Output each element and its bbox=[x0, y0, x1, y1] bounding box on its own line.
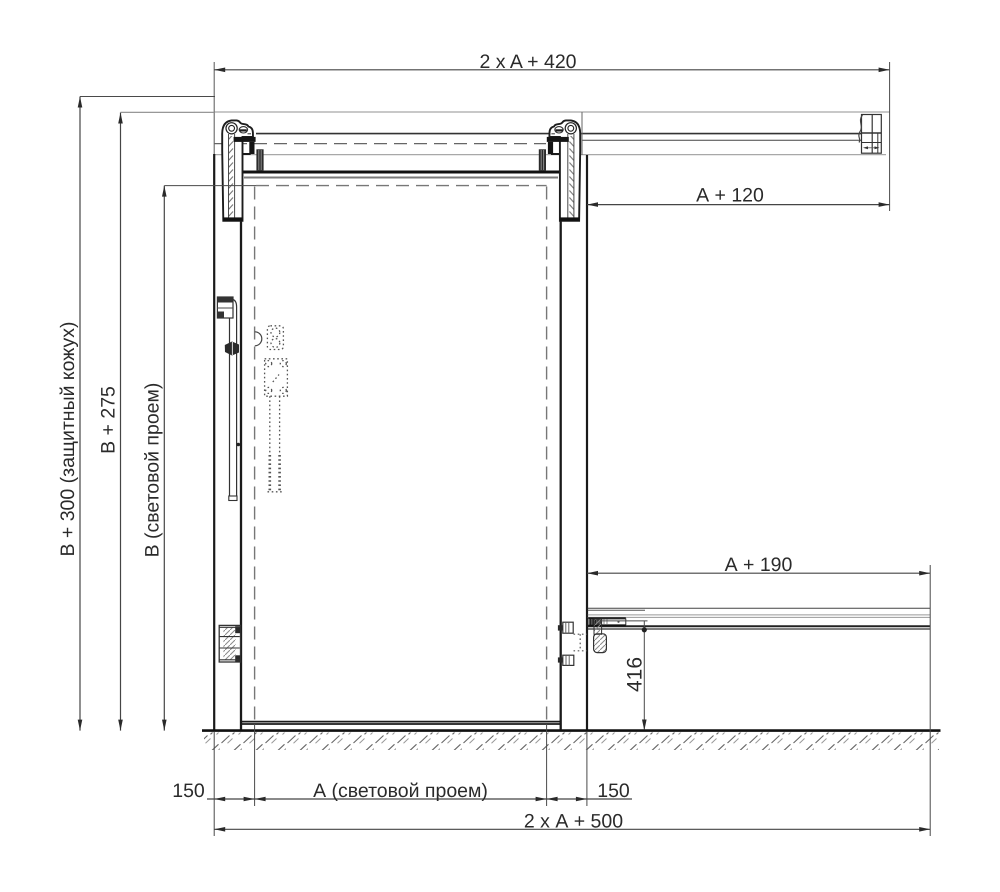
svg-text:В + 300 (защитный кожух): В + 300 (защитный кожух) bbox=[57, 321, 79, 556]
svg-text:А + 190: А + 190 bbox=[725, 554, 793, 576]
svg-text:2 x A + 420: 2 x A + 420 bbox=[479, 51, 576, 73]
svg-text:150: 150 bbox=[172, 780, 205, 802]
svg-text:150: 150 bbox=[597, 780, 630, 802]
svg-text:В + 275: В + 275 bbox=[98, 386, 120, 454]
svg-text:А + 120: А + 120 bbox=[696, 185, 764, 207]
svg-text:2 x А + 500: 2 x А + 500 bbox=[524, 811, 623, 833]
svg-text:416: 416 bbox=[624, 657, 647, 692]
svg-text:А (световой проем): А (световой проем) bbox=[313, 780, 488, 802]
svg-text:В (световой проем): В (световой проем) bbox=[142, 383, 164, 558]
